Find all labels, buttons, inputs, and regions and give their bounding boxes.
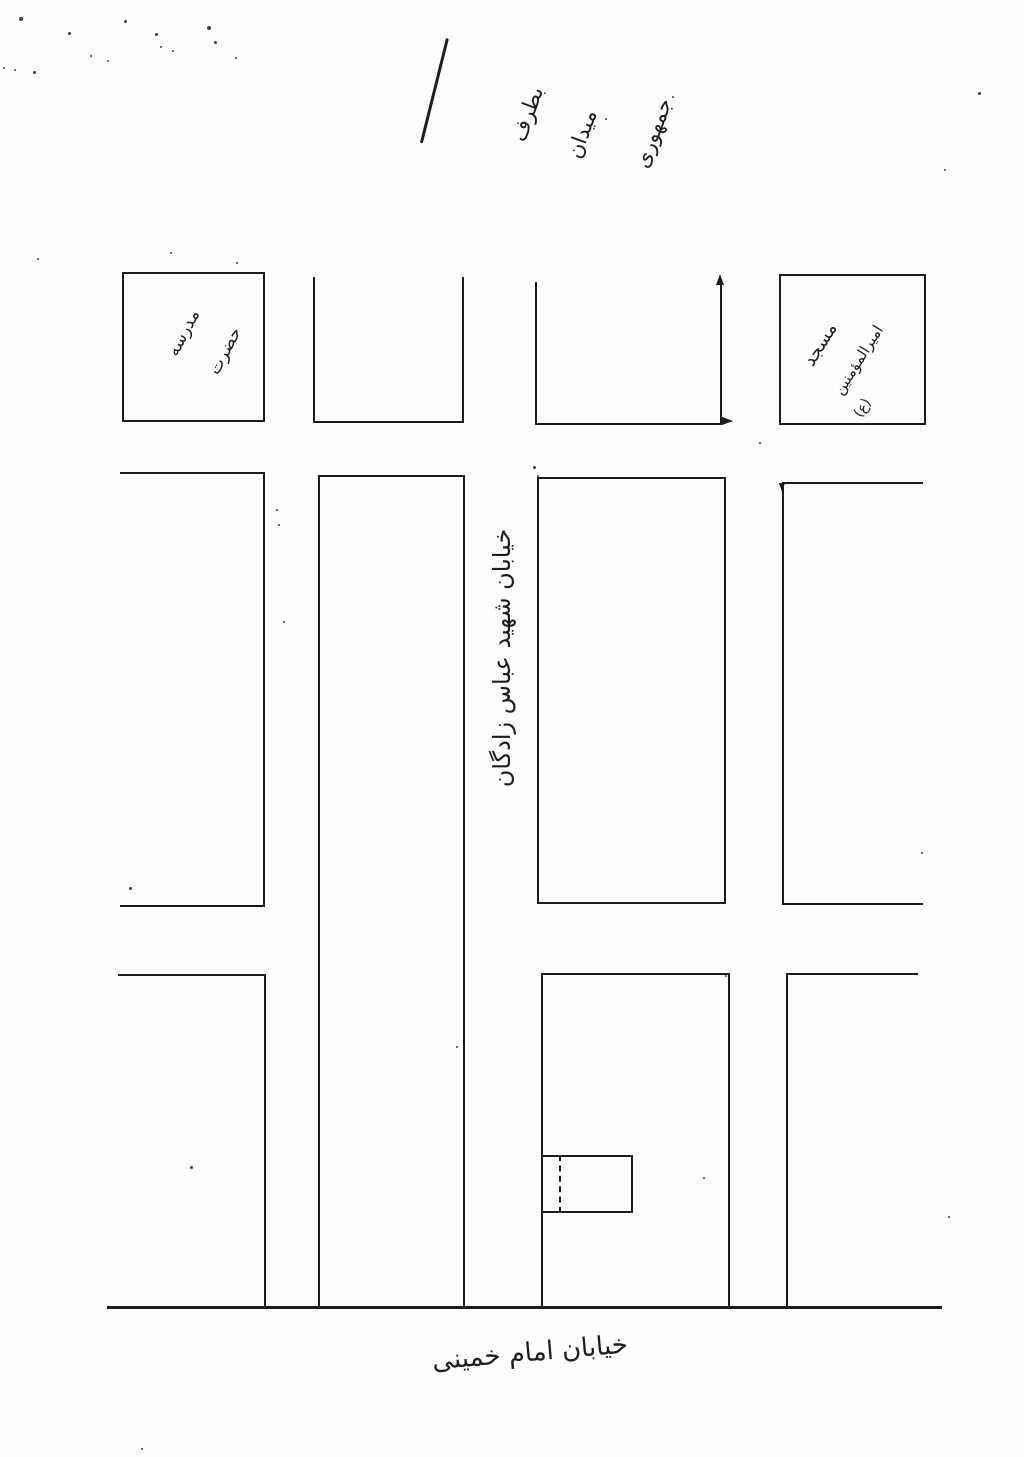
right-arrow-icon	[722, 417, 733, 425]
small-annex-rect	[541, 1155, 633, 1213]
up-arrow-icon	[716, 274, 724, 285]
city-block-bottom-right	[786, 973, 918, 1306]
bottom-street-label: خیابان امام خمینی	[409, 1328, 651, 1379]
school-label-word: مدرسه	[163, 306, 204, 359]
direction-arrow-line	[420, 38, 449, 143]
school-label-word: حضرت	[205, 324, 246, 378]
bottom-street-line	[107, 1306, 942, 1309]
mosque-label-word: (ع)	[851, 396, 875, 421]
direction-note-word: میدان	[562, 106, 602, 161]
main-street-vertical: خیابان شهید عباس زادگان	[467, 488, 537, 828]
main-street-vertical-label: خیابان شهید عباس زادگان	[488, 529, 516, 787]
direction-note-word: جمهوری	[629, 95, 676, 171]
mosque-label-word: مسجد	[799, 319, 842, 370]
city-block-top-center-left	[313, 277, 464, 423]
city-block-middle-right	[782, 482, 923, 905]
annex-dashed-divider	[559, 1155, 561, 1213]
city-block-bottom-center-right	[541, 973, 730, 1306]
city-block-middle-center-right	[537, 477, 726, 904]
city-block-middle-left	[120, 472, 265, 907]
city-block-top-center-right	[535, 282, 722, 425]
mosque-block: مسجد امیرالمؤمنین (ع)	[779, 274, 926, 425]
direction-note-word: بطرف	[506, 83, 548, 144]
city-block-center-tall	[318, 475, 465, 1306]
city-block-bottom-left	[118, 974, 266, 1306]
sketch-map: بطرف میدان جمهوری مدرسه حضرت مسجد امیرال…	[0, 0, 1024, 1457]
school-block: مدرسه حضرت	[122, 272, 265, 422]
